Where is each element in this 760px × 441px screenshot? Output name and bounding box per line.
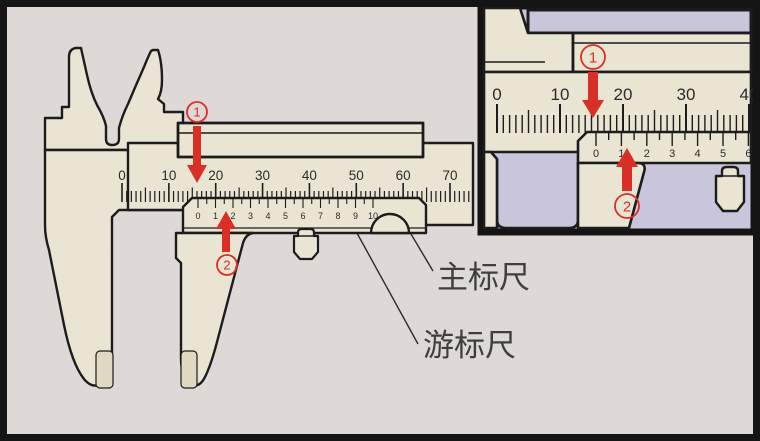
inset-fixed-jaw [484, 152, 497, 228]
thumb-screw [294, 229, 318, 259]
inset-top-slot [528, 10, 751, 33]
diagram-canvas: 0102030405060700123456789101201020304001… [0, 0, 760, 441]
svg-text:4: 4 [695, 148, 701, 160]
svg-text:3: 3 [669, 148, 675, 160]
svg-text:10: 10 [161, 168, 176, 183]
svg-text:0: 0 [118, 168, 126, 183]
svg-text:7: 7 [318, 211, 323, 221]
render-root: 0102030405060700123456789101201020304001… [0, 0, 760, 441]
svg-text:70: 70 [442, 168, 457, 183]
svg-text:1: 1 [589, 49, 597, 66]
svg-text:6: 6 [300, 211, 305, 221]
svg-text:5: 5 [283, 211, 288, 221]
svg-text:50: 50 [349, 168, 364, 183]
svg-text:30: 30 [677, 85, 696, 104]
svg-text:8: 8 [335, 211, 340, 221]
svg-text:30: 30 [255, 168, 270, 183]
main-scale-callout: 主标尺 [437, 260, 530, 295]
svg-text:0: 0 [195, 211, 200, 221]
svg-text:5: 5 [720, 148, 726, 160]
svg-text:9: 9 [353, 211, 358, 221]
svg-text:2: 2 [623, 198, 631, 215]
svg-text:2: 2 [644, 148, 650, 160]
svg-text:2: 2 [223, 258, 230, 273]
slider-top-bar [178, 123, 423, 157]
fixed-jaw-face [96, 351, 113, 388]
svg-text:0: 0 [492, 85, 501, 104]
vernier-scale-callout: 游标尺 [423, 328, 516, 363]
svg-text:2: 2 [230, 211, 235, 221]
svg-text:20: 20 [208, 168, 223, 183]
svg-text:40: 40 [302, 168, 317, 183]
svg-text:20: 20 [614, 85, 633, 104]
svg-text:1: 1 [193, 105, 200, 120]
svg-text:3: 3 [248, 211, 253, 221]
caliper-diagram: 0102030405060700123456789101201020304001… [0, 0, 760, 441]
svg-text:10: 10 [551, 85, 570, 104]
svg-text:6: 6 [745, 148, 751, 160]
svg-text:4: 4 [265, 211, 270, 221]
svg-text:60: 60 [396, 168, 411, 183]
svg-text:1: 1 [213, 211, 218, 221]
svg-text:0: 0 [593, 148, 599, 160]
moving-jaw-face [181, 351, 197, 388]
